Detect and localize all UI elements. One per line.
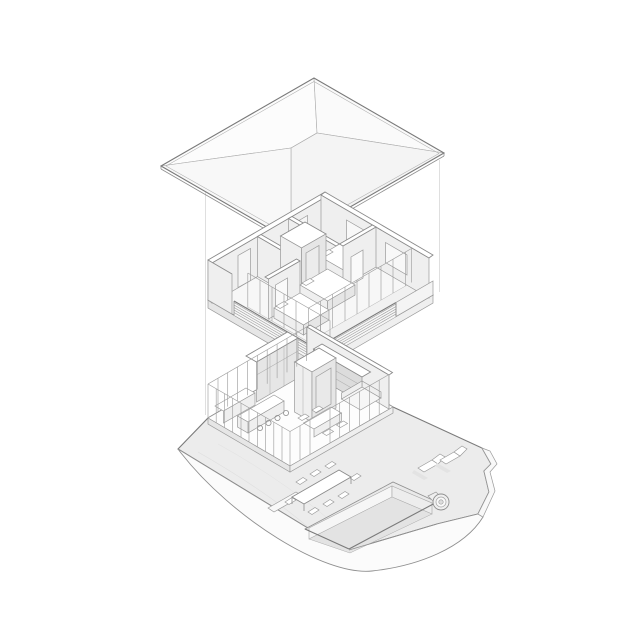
upper-door-nw-1 — [238, 249, 251, 288]
exploded-axonometric-drawing: Exploded axonometric drawing of a two-st… — [0, 0, 640, 640]
ground-floor-group — [178, 325, 497, 571]
drawing-canvas: Exploded axonometric drawing of a two-st… — [0, 0, 640, 640]
